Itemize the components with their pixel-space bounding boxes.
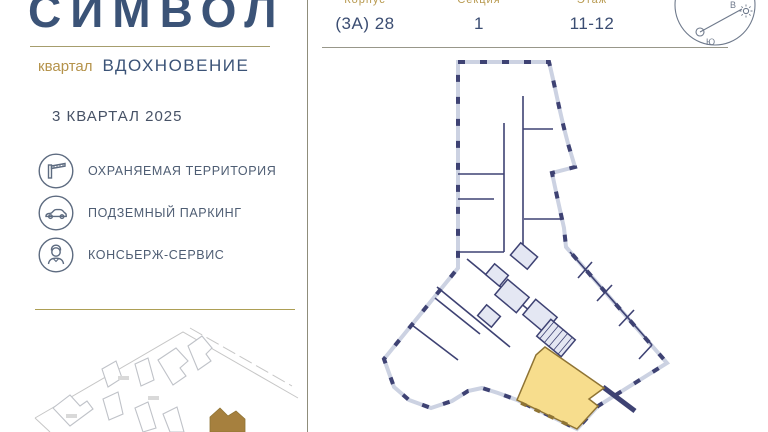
outer-wall-base <box>384 62 667 429</box>
quarter-line: квартал ВДОХНОВЕНИЕ <box>38 56 249 76</box>
map-separator <box>35 309 295 310</box>
concierge-icon <box>38 237 74 273</box>
feature-label: ПОДЗЕМНЫЙ ПАРКИНГ <box>88 206 242 220</box>
unit-sekcia: Секция 1 <box>424 0 534 35</box>
sekcia-value: 1 <box>424 12 534 36</box>
korpus-value: (3А) 28 <box>310 12 420 36</box>
floor-plan <box>368 50 768 432</box>
unit-etazh: Этаж 11-12 <box>537 0 647 35</box>
features-list: ОХРАНЯЕМАЯ ТЕРРИТОРИЯ ПОДЗЕМНЫЙ ПАРКИНГ <box>38 152 276 273</box>
barrier-icon <box>38 153 74 189</box>
feature-concierge-service: КОНСЬЕРЖ-СЕРВИС <box>38 236 276 273</box>
compass-east-label: В <box>730 0 736 10</box>
feature-label: КОНСЬЕРЖ-СЕРВИС <box>88 248 224 262</box>
outer-wall-piers <box>384 62 667 429</box>
delivery-date: 3 КВАРТАЛ 2025 <box>52 108 182 125</box>
etazh-label: Этаж <box>537 0 647 6</box>
current-building-marker[interactable] <box>210 408 245 432</box>
logo-underline <box>30 46 270 47</box>
feature-guarded-territory: ОХРАНЯЕМАЯ ТЕРРИТОРИЯ <box>38 152 276 189</box>
car-icon <box>38 195 74 231</box>
brand-logo: СИМВОЛ <box>28 0 286 34</box>
sekcia-label: Секция <box>424 0 534 6</box>
compass-south-label: Ю <box>706 37 715 47</box>
etazh-value: 11-12 <box>537 12 647 36</box>
header-separator <box>322 47 728 48</box>
compass-icon: Ю В <box>670 0 768 50</box>
unit-korpus: Корпус (3А) 28 <box>310 0 420 35</box>
quarter-label: квартал <box>38 58 93 75</box>
selected-apartment[interactable] <box>517 347 604 429</box>
floor-plan-page: СИМВОЛ квартал ВДОХНОВЕНИЕ 3 КВАРТАЛ 202… <box>0 0 768 432</box>
site-map[interactable] <box>30 316 302 432</box>
korpus-label: Корпус <box>310 0 420 6</box>
feature-underground-parking: ПОДЗЕМНЫЙ ПАРКИНГ <box>38 194 276 231</box>
feature-label: ОХРАНЯЕМАЯ ТЕРРИТОРИЯ <box>88 164 276 178</box>
vertical-divider <box>307 0 308 432</box>
quarter-name: ВДОХНОВЕНИЕ <box>103 56 250 76</box>
building-core <box>478 243 576 357</box>
